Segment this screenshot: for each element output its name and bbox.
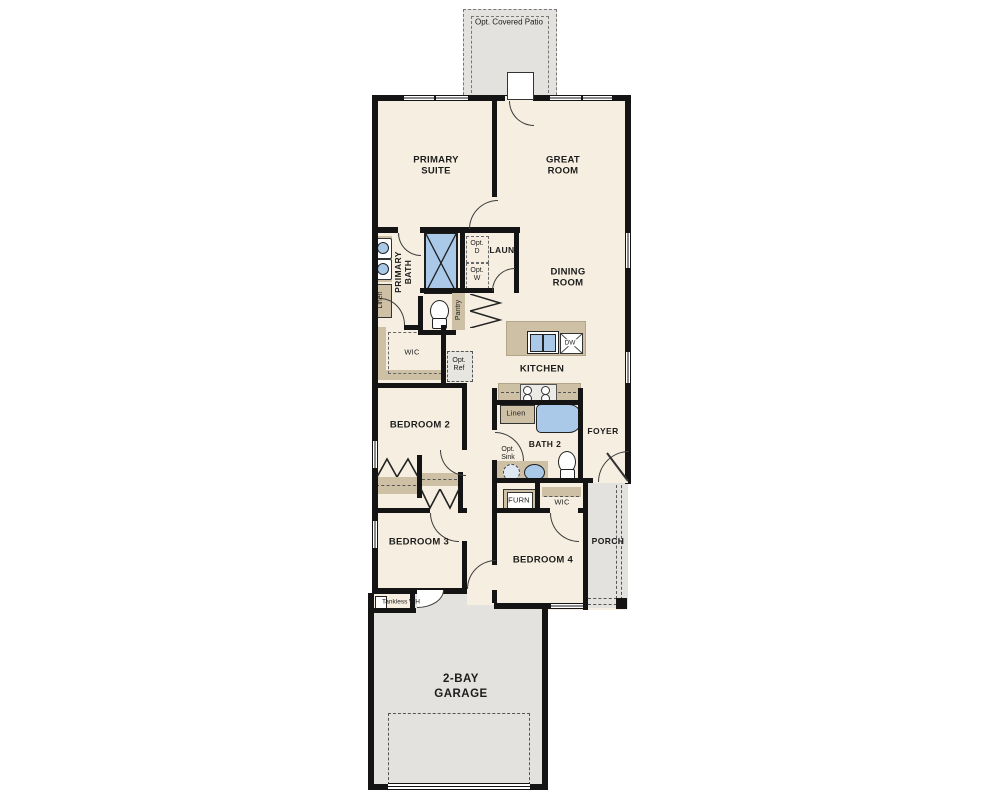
bifold-door	[377, 457, 418, 477]
room-label-bedroom3: BEDROOM 3	[374, 536, 464, 547]
patio-label: Opt. Covered Patio	[459, 17, 559, 26]
window	[625, 352, 631, 383]
opt-sink-label: Opt. Sink	[496, 446, 520, 462]
linen-label: Linen	[377, 288, 385, 312]
patio-door-leaf	[507, 72, 534, 100]
opt-washer-label: Opt. W	[467, 267, 487, 283]
wall	[492, 590, 497, 603]
wall	[625, 95, 631, 484]
floor-plan: Opt. Covered Patio PRIMARY SUITE GREAT R…	[0, 0, 1000, 800]
wall	[492, 101, 497, 197]
bifold-door	[421, 489, 459, 510]
wall	[372, 227, 398, 233]
room-label-foyer: FOYER	[581, 426, 625, 436]
dishwasher-label: DW	[562, 339, 578, 346]
porch-column	[616, 598, 627, 609]
window	[550, 95, 581, 101]
bed3-closet-rod	[422, 479, 457, 480]
room-label-porch: PORCH	[586, 536, 630, 546]
pantry-label: Pantry	[455, 296, 463, 324]
window	[551, 603, 583, 609]
island-sink-bowl	[543, 334, 556, 352]
wall	[404, 325, 420, 330]
room-label-garage: 2-BAY GARAGE	[426, 672, 496, 702]
wall	[494, 478, 593, 483]
counter-dash	[558, 392, 576, 393]
island-sink-bowl	[530, 334, 543, 352]
room-label-bedroom2: BEDROOM 2	[375, 419, 465, 430]
window	[404, 95, 434, 101]
wall	[492, 388, 497, 430]
wall	[368, 608, 416, 613]
wall	[458, 508, 467, 513]
vanity-sink-bowl	[377, 263, 389, 275]
opt-ref-label: Opt. Ref	[448, 357, 470, 373]
bathtub	[536, 404, 582, 433]
room-label-kitchen: KITCHEN	[507, 363, 577, 374]
room-label-primary-suite: PRIMARY SUITE	[409, 155, 463, 178]
wall	[368, 593, 374, 790]
furn-label: FURN	[504, 496, 534, 505]
wall	[418, 330, 456, 335]
room-label-bedroom4: BEDROOM 4	[498, 554, 588, 565]
room-label-dining: DINING ROOM	[543, 267, 593, 290]
window	[436, 95, 468, 101]
wall	[494, 400, 583, 405]
shower	[424, 232, 458, 294]
tankless-label: Tankless WH	[382, 598, 420, 605]
wall	[460, 233, 465, 290]
room-label-laundry: LAUN	[482, 245, 522, 255]
wall	[494, 508, 550, 513]
wall	[578, 508, 588, 513]
wall	[441, 325, 446, 383]
front-door-leaf	[605, 451, 630, 482]
window	[583, 95, 612, 101]
room-label-bath2: BATH 2	[522, 439, 568, 449]
wall	[372, 95, 378, 593]
wall	[542, 608, 548, 790]
garage-door	[388, 783, 530, 790]
wall	[372, 383, 467, 388]
room-label-primary-bath: PRIMARY BATH	[393, 246, 413, 298]
bed2-closet-rod	[376, 485, 416, 486]
wall	[420, 288, 460, 293]
counter-dash	[501, 392, 519, 393]
room-label-great-room: GREAT ROOM	[540, 155, 586, 178]
wic-primary-label: WIC	[397, 348, 427, 357]
vanity-sink-bowl	[377, 242, 389, 254]
wall	[460, 288, 494, 293]
linen-bath2-label: Linen	[501, 409, 531, 418]
window	[625, 233, 631, 268]
pantry-doors	[470, 294, 503, 328]
garage-opt-bay-outline	[388, 713, 530, 785]
opt-dryer-label: Opt. D	[467, 240, 487, 256]
wic-bed4-label: WIC	[547, 498, 577, 507]
